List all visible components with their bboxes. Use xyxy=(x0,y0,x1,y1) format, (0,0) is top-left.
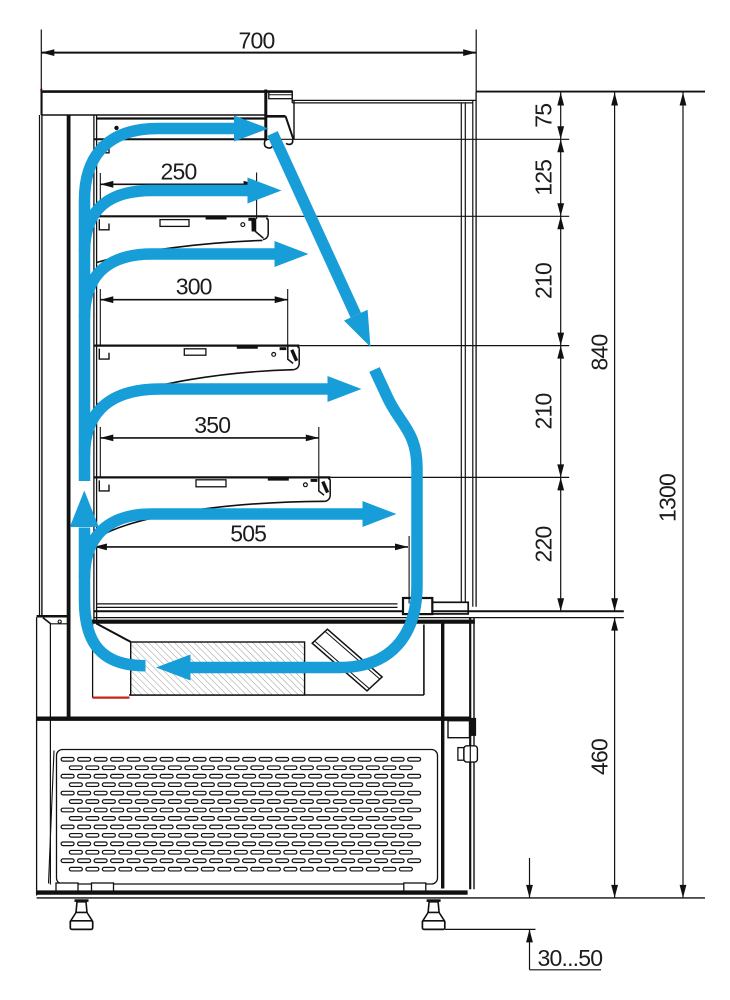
svg-text:210: 210 xyxy=(531,394,557,430)
svg-text:210: 210 xyxy=(531,263,557,299)
svg-text:125: 125 xyxy=(531,160,557,196)
svg-text:220: 220 xyxy=(531,527,557,563)
svg-text:700: 700 xyxy=(239,28,275,54)
svg-text:75: 75 xyxy=(531,104,557,128)
svg-text:300: 300 xyxy=(176,274,212,300)
svg-text:250: 250 xyxy=(161,158,197,184)
svg-text:505: 505 xyxy=(230,521,266,547)
svg-text:840: 840 xyxy=(587,335,613,371)
svg-text:460: 460 xyxy=(587,739,613,775)
svg-text:1300: 1300 xyxy=(655,474,681,522)
svg-text:30...50: 30...50 xyxy=(538,945,603,971)
svg-text:350: 350 xyxy=(194,412,230,438)
